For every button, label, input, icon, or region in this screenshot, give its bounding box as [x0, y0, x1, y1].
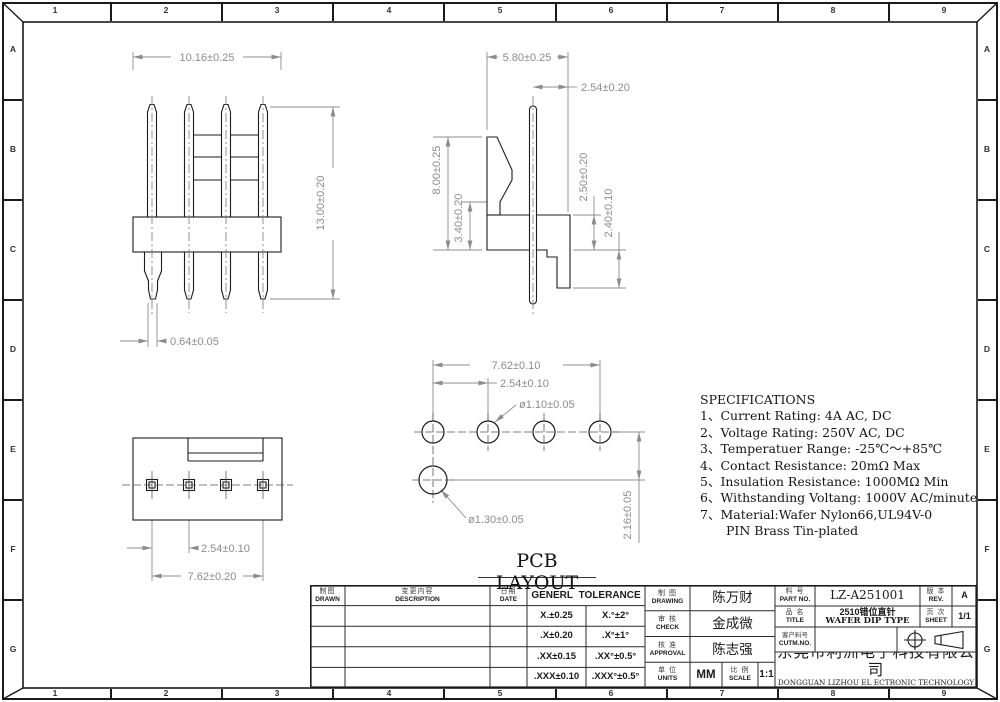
zone-col-label: 8: [823, 5, 843, 16]
part-number: LZ-A251001: [815, 585, 920, 606]
zone-row-label: D: [3, 344, 23, 355]
header-drawn-cn: 制图: [320, 588, 336, 596]
label-sheet-en: SHEET: [925, 617, 947, 624]
label-part-no: 料 号 PART NO.: [775, 585, 815, 606]
spec-item: PIN Brass Tin-plated: [700, 523, 992, 539]
tolerance-cell: .XX°±0.5°: [586, 647, 645, 667]
dim-bottom-span: 7.62±0.20: [188, 571, 237, 583]
label-title-cn: 品 名: [786, 609, 805, 617]
label-check: 审 核 CHECK: [645, 611, 690, 637]
front-centerlines: [152, 96, 263, 315]
zone-col-label: 8: [823, 688, 843, 699]
drawing-signature: 陈万财: [690, 585, 775, 611]
zone-col-label: 4: [379, 688, 399, 699]
label-rev-en: REV.: [929, 596, 944, 603]
header-description: 变更内容 DESCRIPTION: [345, 585, 490, 606]
spec-item: 6、Withstanding Voltang: 1000V AC/minute: [700, 490, 992, 506]
zone-row-label: A: [977, 44, 997, 55]
label-drawing: 制 图 DRAWING: [645, 585, 690, 611]
company-block: 东莞市利洲电子科技有限公司 DONGGUAN LIZHOU EL ECTRONI…: [775, 652, 977, 688]
label-sheet-cn: 页 次: [927, 609, 946, 617]
tolerance-cell: .X±0.20: [527, 626, 586, 647]
zone-col-label: 1: [45, 5, 65, 16]
label-title-en: TITLE: [786, 617, 804, 624]
zone-row-label: G: [977, 644, 997, 655]
spec-item: 7、Material:Wafer Nylon66,UL94V-0: [700, 507, 992, 523]
label-approval-en: APPROVAL: [650, 650, 686, 657]
zone-col-label: 9: [934, 688, 954, 699]
tolerance-cell: X.°±2°: [586, 606, 645, 626]
tolerance-cell: .XXX°±0.5°: [586, 667, 645, 688]
header-description-cn: 变更内容: [402, 588, 434, 596]
pcb-layout-caption: PCB LAYOUT: [478, 550, 596, 578]
side-view-drawing: 5.80±0.25 2.54±0.20 8.00±0.25 3.40±0.20 …: [420, 38, 650, 358]
company-name-en: DONGGUAN LIZHOU EL ECTRONIC TECHNOLOGY C…: [775, 679, 977, 688]
tolerance-cell: .XX±0.15: [527, 647, 586, 667]
label-rev-cn: 版 本: [927, 588, 946, 596]
zone-row-label: E: [3, 444, 23, 455]
drawing-sheet: 1 2 3 4 5 6 7 8 9 1 2 3 4 5 6 7 8 9 A B …: [0, 0, 1000, 702]
zone-row-label: C: [977, 244, 997, 255]
spec-item: 3、Temperatuer Range: -25℃～+85℃: [700, 441, 992, 457]
zone-row-label: F: [3, 544, 23, 555]
approval-signature: 陈志强: [690, 637, 775, 662]
zone-col-label: 3: [267, 5, 287, 16]
header-drawn: 制图 DRAWN: [310, 585, 345, 606]
header-date: 日期 DATE: [490, 585, 527, 606]
label-scale-cn: 比 例: [731, 667, 750, 675]
label-title: 品 名 TITLE: [775, 606, 815, 627]
label-check-cn: 审 核: [658, 616, 677, 624]
label-part-no-en: PART NO.: [780, 596, 811, 603]
tolerance-cell: .X°±1°: [586, 626, 645, 647]
zone-col-label: 4: [379, 5, 399, 16]
zone-col-label: 2: [156, 5, 176, 16]
side-part-outline: [487, 106, 570, 304]
header-drawn-en: DRAWN: [315, 596, 340, 603]
spec-item: 2、Voltage Rating: 250V AC, DC: [700, 425, 992, 441]
zone-row-label: A: [3, 44, 23, 55]
zone-row-label: B: [977, 144, 997, 155]
spec-item: 4、Contact Resistance: 20mΩ Max: [700, 458, 992, 474]
third-angle-projection-icon: [898, 628, 976, 652]
spec-item: 5、Insulation Resistance: 1000MΩ Min: [700, 474, 992, 490]
header-date-en: DATE: [500, 596, 517, 603]
sheet-value: 1/1: [952, 606, 977, 627]
dim-front-pin-width: 0.64±0.05: [170, 336, 219, 348]
zone-col-label: 3: [267, 688, 287, 699]
label-scale: 比 例 SCALE: [722, 662, 758, 688]
dim-side-body-height: 3.40±0.20: [453, 194, 465, 243]
label-customer-no-en: CUTM.NO.: [779, 640, 811, 647]
bottom-part-outline: [133, 438, 282, 520]
front-part-outline: [133, 105, 281, 300]
zone-col-label: 5: [490, 5, 510, 16]
label-approval-cn: 核 准: [658, 642, 677, 650]
specifications-title: SPECIFICATIONS: [700, 392, 992, 408]
zone-row-label: G: [3, 644, 23, 655]
projection-symbol-cell: [897, 627, 977, 652]
label-customer-no: 客户料号 CUTM.NO.: [775, 627, 815, 652]
zone-row-label: F: [977, 544, 997, 555]
label-units-cn: 单 位: [658, 667, 677, 675]
zone-col-label: 7: [712, 688, 732, 699]
customer-no-value: [815, 627, 897, 652]
dim-pcb-pitch: 2.54±0.10: [500, 378, 549, 390]
zone-row-label: C: [3, 244, 23, 255]
zone-col-label: 6: [601, 688, 621, 699]
dim-side-height: 8.00±0.25: [431, 146, 443, 195]
tolerance-cell: X.±0.25: [527, 606, 586, 626]
header-description-en: DESCRIPTION: [395, 596, 439, 603]
label-drawing-en: DRAWING: [652, 598, 683, 605]
label-customer-no-cn: 客户料号: [782, 632, 808, 639]
dim-side-width: 5.80±0.25: [503, 52, 552, 64]
label-sheet: 页 次 SHEET: [920, 606, 952, 627]
header-date-cn: 日期: [501, 588, 517, 596]
title-block: 制图 DRAWN 变更内容 DESCRIPTION 日期 DATE GENERL…: [310, 585, 977, 688]
dim-pcb-span: 7.62±0.10: [492, 360, 541, 372]
company-name-cn: 东莞市利洲电子科技有限公司: [775, 652, 977, 679]
dim-side-foot-height: 2.40±0.10: [603, 189, 615, 238]
tolerance-cell: .XXX±0.10: [527, 667, 586, 688]
check-signature: 金成微: [690, 611, 775, 637]
label-units-en: UNITS: [658, 675, 678, 682]
specifications-block: SPECIFICATIONS 1、Current Rating: 4A AC, …: [700, 392, 992, 540]
dim-pcb-hole: ø1.10±0.05: [519, 399, 575, 411]
dim-side-base-height: 2.50±0.20: [578, 153, 590, 202]
label-approval: 核 准 APPROVAL: [645, 637, 690, 662]
front-view-drawing: 10.16±0.25 13.00±0.20 0.64±0.05: [90, 38, 370, 358]
label-check-en: CHECK: [656, 624, 679, 631]
scale-value: 1:1: [758, 662, 775, 688]
zone-row-label: D: [977, 344, 997, 355]
zone-col-label: 1: [45, 688, 65, 699]
label-units: 单 位 UNITS: [645, 662, 690, 688]
label-rev: 版 本 REV.: [920, 585, 952, 606]
pcb-layout-drawing: 7.62±0.10 2.54±0.10 ø1.10±0.05 ø1.30±0.0…: [405, 350, 665, 550]
dim-pcb-hole-offset: ø1.30±0.05: [468, 514, 524, 526]
label-part-no-cn: 料 号: [786, 588, 805, 596]
zone-col-label: 5: [490, 688, 510, 699]
label-scale-en: SCALE: [729, 675, 751, 682]
zone-col-label: 6: [601, 5, 621, 16]
spec-item: 1、Current Rating: 4A AC, DC: [700, 408, 992, 424]
zone-col-label: 2: [156, 688, 176, 699]
dim-bottom-pitch: 2.54±0.10: [201, 543, 250, 555]
dim-front-height: 13.00±0.20: [315, 176, 327, 231]
dim-front-width: 10.16±0.25: [180, 52, 235, 64]
tolerance-header: GENERL TOLERANCE: [527, 585, 645, 606]
zone-row-label: B: [3, 144, 23, 155]
dim-side-pin-offset: 2.54±0.20: [581, 82, 630, 94]
units-value: MM: [690, 662, 722, 688]
bottom-view-drawing: 2.54±0.10 7.62±0.20: [115, 425, 335, 600]
product-title: 2510错位直针 WAFER DIP TYPE: [815, 606, 920, 627]
product-title-en: WAFER DIP TYPE: [825, 617, 909, 627]
dim-pcb-row-offset: 2.16±0.05: [622, 491, 634, 540]
zone-col-label: 7: [712, 5, 732, 16]
rev-value: A: [952, 585, 977, 606]
zone-col-label: 9: [934, 5, 954, 16]
label-drawing-cn: 制 图: [658, 590, 677, 598]
